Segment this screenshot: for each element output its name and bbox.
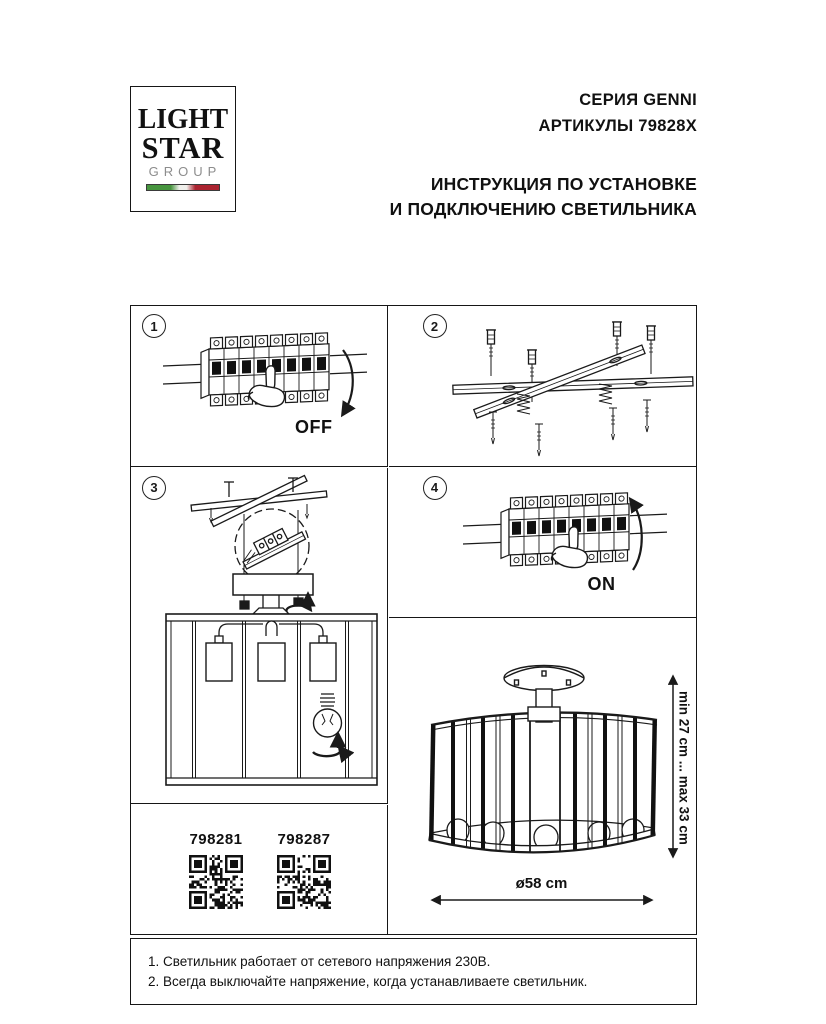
italian-flag-bar [146, 184, 220, 191]
logo-word-group: GROUP [131, 164, 235, 179]
ceiling-canopy [233, 574, 313, 595]
product-codes-panel: 798281 798287 [131, 805, 388, 935]
series-title: СЕРИЯ GENNI [390, 87, 697, 113]
screws [489, 400, 651, 456]
step-number-badge: 2 [423, 314, 447, 338]
off-label: OFF [295, 417, 333, 438]
step-number-badge: 1 [142, 314, 166, 338]
articles-title: АРТИКУЛЫ 79828X [390, 113, 697, 139]
qr-code [189, 855, 243, 909]
instruction-title: ИНСТРУКЦИЯ ПО УСТАНОВКЕ И ПОДКЛЮЧЕНИЮ СВ… [390, 172, 697, 222]
note-line: 1. Светильник работает от сетевого напря… [148, 952, 686, 972]
safety-notes: 1. Светильник работает от сетевого напря… [130, 938, 697, 1005]
lock-nut [240, 601, 249, 609]
document-header: СЕРИЯ GENNI АРТИКУЛЫ 79828X ИНСТРУКЦИЯ П… [390, 87, 697, 222]
fixture-assembly-diagram [131, 468, 387, 802]
step-number-badge: 4 [423, 476, 447, 500]
product-code-label: 798281 [187, 831, 245, 848]
logo-word-light: LIGHT [134, 105, 233, 133]
product-code-column: 798287 [275, 831, 333, 909]
note-line: 2. Всегда выключайте напряжение, когда у… [148, 972, 686, 992]
instruction-title-line1: ИНСТРУКЦИЯ ПО УСТАНОВКЕ [390, 172, 697, 197]
arrow-down-icon [343, 350, 353, 414]
instruction-title-line2: И ПОДКЛЮЧЕНИЮ СВЕТИЛЬНИКА [390, 197, 697, 222]
step-4-power-on-panel: 4 ON [389, 468, 697, 619]
lightstar-logo: LIGHT STAR GROUP [130, 86, 236, 212]
step-3-assembly-panel: 3 [131, 468, 388, 805]
height-dimension-label: min 27 cm ... max 33 cm [677, 679, 692, 857]
product-code-column: 798281 [187, 831, 245, 909]
arrow-up-icon [631, 500, 642, 570]
circuit-breaker-off-diagram [131, 306, 387, 464]
product-code-label: 798287 [275, 831, 333, 848]
logo-word-star: STAR [132, 133, 234, 162]
steps-grid: 1 OFF 2 [130, 305, 697, 935]
step-1-power-off-panel: 1 OFF [131, 306, 388, 467]
diameter-dimension-label: ø58 cm [447, 875, 637, 892]
step-number-badge: 3 [142, 476, 166, 500]
instruction-sheet: LIGHT STAR GROUP СЕРИЯ GENNI АРТИКУЛЫ 79… [0, 0, 826, 1024]
qr-code [277, 855, 331, 909]
step-2-mounting-brackets-panel: 2 [389, 306, 697, 467]
fixture-dimensions-panel: min 27 cm ... max 33 cm ø58 cm [389, 619, 697, 935]
on-label: ON [588, 574, 616, 595]
